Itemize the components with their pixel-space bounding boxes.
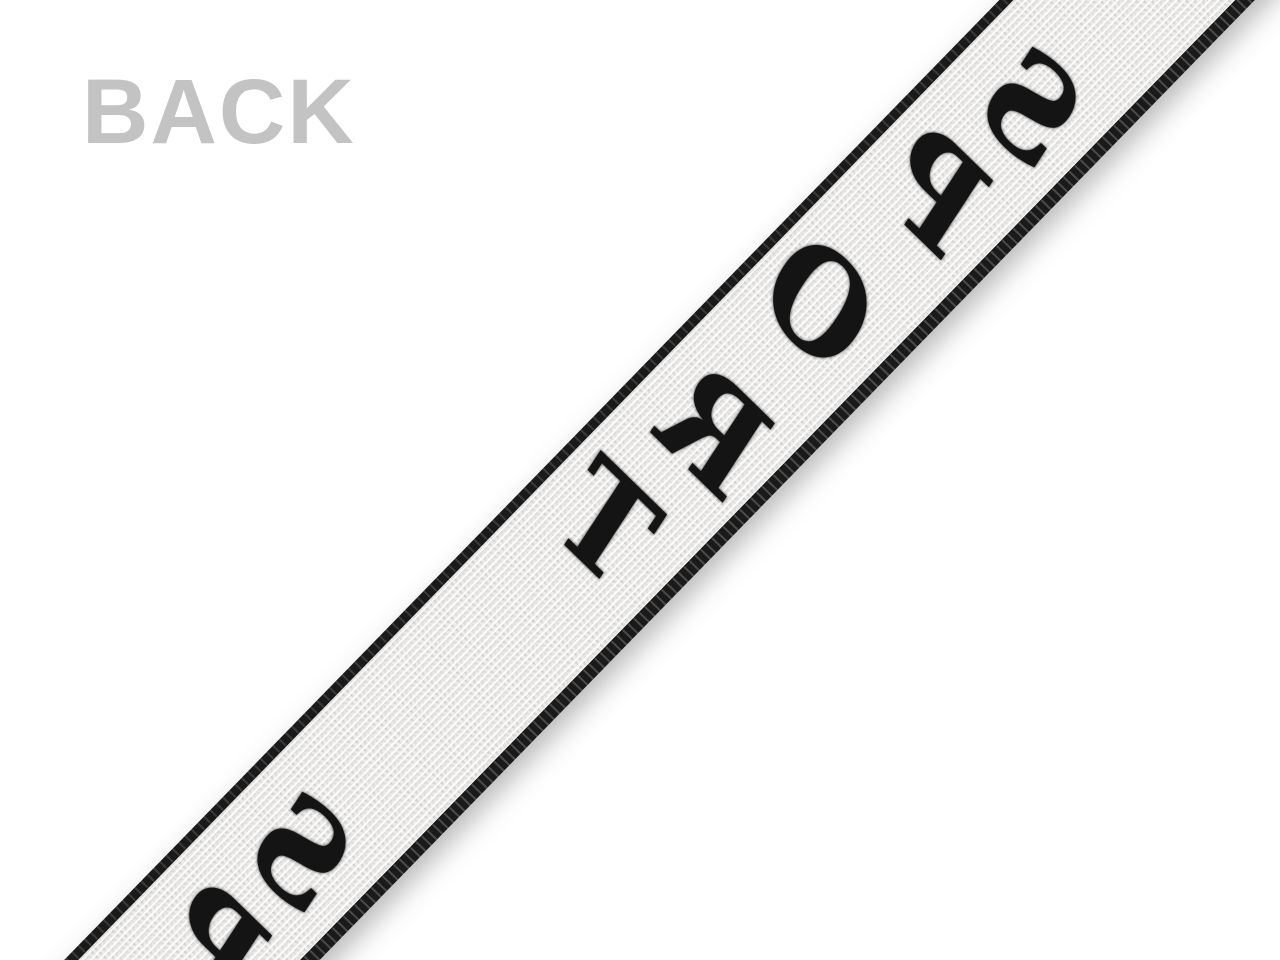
back-side-label: BACK [82,66,356,158]
product-photo: BACK SPORTSP [0,0,1280,960]
